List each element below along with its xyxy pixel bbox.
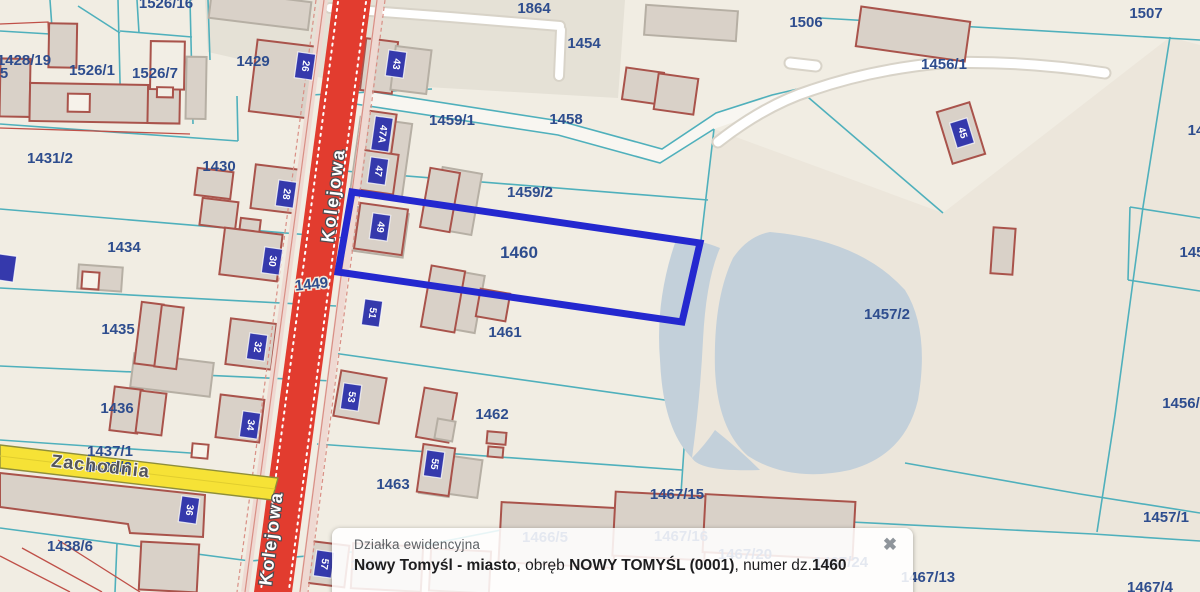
svg-text:57: 57 xyxy=(318,558,331,571)
parcel-label: 1864 xyxy=(517,0,551,17)
parcel-label: 14 xyxy=(1188,122,1200,139)
address-marker: 34 xyxy=(239,411,260,439)
address-marker: 30 xyxy=(261,247,282,275)
parcel-label: 1526/7 xyxy=(132,65,178,82)
parcel-label: 1457/1 xyxy=(1143,509,1189,526)
parcel-label: 1430 xyxy=(202,158,235,175)
popup-text-part: Nowy Tomyśl - miasto xyxy=(354,557,517,574)
parcel-label: 1463 xyxy=(376,476,409,493)
address-marker: 47A xyxy=(371,116,394,152)
svg-text:32: 32 xyxy=(251,341,264,354)
parcel-label: 5 xyxy=(0,65,8,82)
parcel-label: 1436 xyxy=(100,400,133,417)
parcel-label: 1449 xyxy=(294,274,329,294)
parcel-label: 1467/15 xyxy=(650,486,704,503)
parcel-label: 1454 xyxy=(567,35,601,52)
parcel-label: 1526/16 xyxy=(139,0,193,12)
address-marker: 28 xyxy=(275,180,296,208)
parcel-label: 1506 xyxy=(789,14,822,31)
parcel-label: 145 xyxy=(1179,244,1200,261)
parcel-label: 1431/2 xyxy=(27,150,73,167)
parcel-label: 1459/1 xyxy=(429,112,475,129)
address-marker: 53 xyxy=(340,383,361,411)
parcel-label: 1526/1 xyxy=(69,62,115,79)
svg-text:28: 28 xyxy=(280,188,293,201)
address-marker: 32 xyxy=(246,333,267,361)
popup-title: Działka ewidencyjna xyxy=(354,537,895,552)
svg-text:51: 51 xyxy=(366,307,379,320)
address-marker: 55 xyxy=(423,450,444,478)
address-marker: 47 xyxy=(367,157,388,185)
map-viewport: 1526/1618641454150615071456/11428/195152… xyxy=(0,0,1200,592)
parcel-label: 1467/4 xyxy=(1127,579,1174,592)
address-marker: 36 xyxy=(178,496,199,524)
parcel-label: 1459/2 xyxy=(507,184,553,201)
parcel-label: 1507 xyxy=(1129,5,1162,22)
address-marker: 26 xyxy=(294,52,315,80)
popup-text-part: , numer dz. xyxy=(734,557,812,574)
popup-text-part: , obręb xyxy=(517,557,570,574)
address-marker: 49 xyxy=(369,213,390,241)
svg-text:55: 55 xyxy=(428,458,441,471)
svg-text:26: 26 xyxy=(299,60,312,73)
parcel-label: 1461 xyxy=(488,324,521,341)
parcel-label: 1460 xyxy=(500,243,538,262)
parcel-label: 1438/6 xyxy=(47,538,93,555)
svg-text:53: 53 xyxy=(345,391,358,404)
close-icon[interactable]: ✖ xyxy=(879,534,901,556)
popup-text-part: NOWY TOMYŚL (0001) xyxy=(569,557,734,574)
address-marker: 51 xyxy=(361,299,382,327)
svg-text:49: 49 xyxy=(374,221,387,234)
popup-text-part: 1460 xyxy=(812,557,846,574)
svg-text:34: 34 xyxy=(244,419,257,432)
parcel-info-popup: Działka ewidencyjna Nowy Tomyśl - miasto… xyxy=(332,528,913,592)
svg-text:47: 47 xyxy=(372,165,385,178)
map-canvas[interactable]: 1526/1618641454150615071456/11428/195152… xyxy=(0,0,1200,592)
parcel-label: 1456/1 xyxy=(921,56,967,73)
parcel-label: 1458 xyxy=(549,111,582,128)
address-marker xyxy=(0,254,17,282)
parcel-label: 1429 xyxy=(236,53,269,70)
svg-text:43: 43 xyxy=(390,58,403,71)
parcel-label: 1462 xyxy=(475,406,508,423)
svg-text:36: 36 xyxy=(183,504,196,517)
popup-parcel-info: Nowy Tomyśl - miasto, obręb NOWY TOMYŚL … xyxy=(354,557,895,575)
parcel-label: 1434 xyxy=(107,239,141,256)
address-marker: 43 xyxy=(385,50,406,78)
parcel-label: 1457/2 xyxy=(864,306,910,323)
parcel-label: 1456/ xyxy=(1162,395,1200,412)
parcel-label: 1435 xyxy=(101,321,134,338)
svg-text:30: 30 xyxy=(266,255,279,268)
